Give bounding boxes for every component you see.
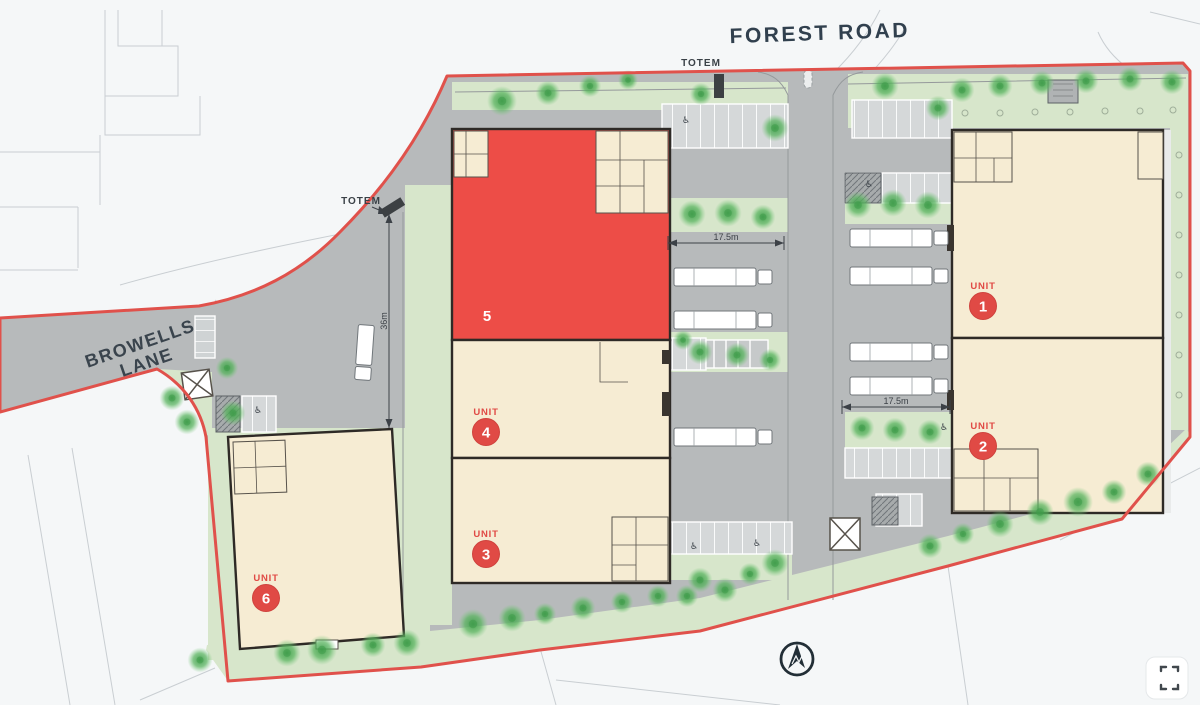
wheelchair-icon: ♿ (254, 405, 262, 415)
unit-4-label: UNIT 4 (473, 407, 500, 446)
north-arrow-icon (781, 643, 813, 675)
svg-text:UNIT: UNIT (473, 529, 498, 540)
tree-center (688, 210, 696, 218)
van-trailer (850, 267, 932, 285)
forest-road-label: FOREST ROAD (729, 19, 910, 48)
tree-center (697, 349, 704, 356)
tree-center (760, 214, 767, 221)
tree-center (996, 520, 1004, 528)
tree-center (542, 611, 548, 617)
van-trailer (674, 311, 756, 329)
tree-center (283, 649, 291, 657)
tree-center (469, 620, 477, 628)
tree-center (370, 642, 377, 649)
tree-center (230, 410, 237, 417)
van-trailer (674, 428, 756, 446)
yard-lorry (355, 324, 375, 380)
tree-center (684, 593, 690, 599)
unit5-number-label: 5 (483, 308, 491, 325)
tree-center (1036, 508, 1044, 516)
tree-center (997, 83, 1004, 90)
van-trailer (674, 268, 756, 286)
tree-center (927, 543, 934, 550)
tree-center (767, 357, 773, 363)
tree-center (960, 531, 966, 537)
van-trailer (850, 343, 932, 361)
tree-center (1145, 471, 1152, 478)
tree-center (680, 337, 686, 343)
tree-center (184, 419, 191, 426)
tree-center (724, 209, 732, 217)
tree-center (854, 201, 862, 209)
tree-center (722, 587, 729, 594)
svg-text:UNIT: UNIT (253, 573, 278, 584)
tree-center (698, 91, 704, 97)
tree-center (545, 90, 552, 97)
tree-center (655, 593, 661, 599)
wheelchair-icon: ♿ (753, 538, 761, 548)
unit-6-building[interactable] (228, 429, 404, 649)
tree-center (924, 201, 932, 209)
wheelchair-icon: ♿ (865, 179, 873, 189)
van-cab (758, 313, 772, 327)
tree-center (403, 639, 411, 647)
tree-center (508, 614, 516, 622)
traffic-island (804, 70, 812, 88)
tree-center (927, 429, 934, 436)
wheelchair-icon: ♿ (940, 422, 948, 432)
svg-text:UNIT: UNIT (970, 421, 995, 432)
van-cab (758, 270, 772, 284)
wheelchair-icon: ♿ (682, 115, 690, 125)
totem-top-label: TOTEM (681, 58, 721, 69)
unit-2-label: UNIT 2 (970, 421, 997, 460)
tree-center (881, 82, 889, 90)
tree-center (619, 599, 625, 605)
dim-yard-label: 36m (379, 312, 389, 330)
tree-center (587, 83, 593, 89)
wheelchair-icon: ♿ (690, 541, 698, 551)
tree-center (697, 577, 704, 584)
unit-1-label: UNIT 1 (970, 281, 997, 320)
van-cab (758, 430, 772, 444)
dim-right-court-label: 17.5m (883, 396, 908, 406)
tree-center (892, 427, 899, 434)
totem-left-label: TOTEM (341, 196, 381, 207)
site-plan-drawing: 5 (0, 0, 1200, 705)
tree-center (889, 199, 897, 207)
svg-text:UNIT: UNIT (970, 281, 995, 292)
tree-center (771, 124, 779, 132)
fullscreen-button[interactable] (1146, 657, 1188, 699)
tree-center (771, 559, 779, 567)
tree-center (318, 646, 326, 654)
site-plan-viewer: 5 (0, 0, 1200, 705)
svg-text:6: 6 (262, 591, 270, 608)
unit-5-building[interactable]: 5 (452, 129, 670, 340)
unit-3-label: UNIT 3 (473, 529, 500, 568)
tree-center (935, 105, 942, 112)
tree-center (859, 425, 866, 432)
van-cab (934, 231, 948, 245)
van-cab (934, 379, 948, 393)
van-trailer (850, 377, 932, 395)
tree-center (734, 352, 741, 359)
tree-center (498, 97, 506, 105)
tree-center (1083, 78, 1090, 85)
tree-center (959, 87, 966, 94)
tree-center (1169, 79, 1176, 86)
tree-center (1127, 76, 1134, 83)
dim-left-court-label: 17.5m (713, 232, 738, 242)
tree-center (1111, 489, 1118, 496)
tree-center (1074, 498, 1082, 506)
tree-center (169, 395, 176, 402)
tree-center (1039, 80, 1046, 87)
van-trailer (850, 229, 932, 247)
unit-6-label: UNIT 6 (253, 573, 280, 612)
svg-text:4: 4 (482, 425, 491, 442)
svg-text:2: 2 (979, 439, 987, 456)
tree-center (580, 605, 587, 612)
tree-center (625, 77, 631, 83)
van-cab (934, 345, 948, 359)
van-cab (934, 269, 948, 283)
svg-text:3: 3 (482, 547, 490, 564)
tree-center (224, 365, 230, 371)
svg-text:1: 1 (979, 299, 987, 316)
tree-center (747, 571, 753, 577)
tree-center (197, 657, 204, 664)
svg-text:UNIT: UNIT (473, 407, 498, 418)
